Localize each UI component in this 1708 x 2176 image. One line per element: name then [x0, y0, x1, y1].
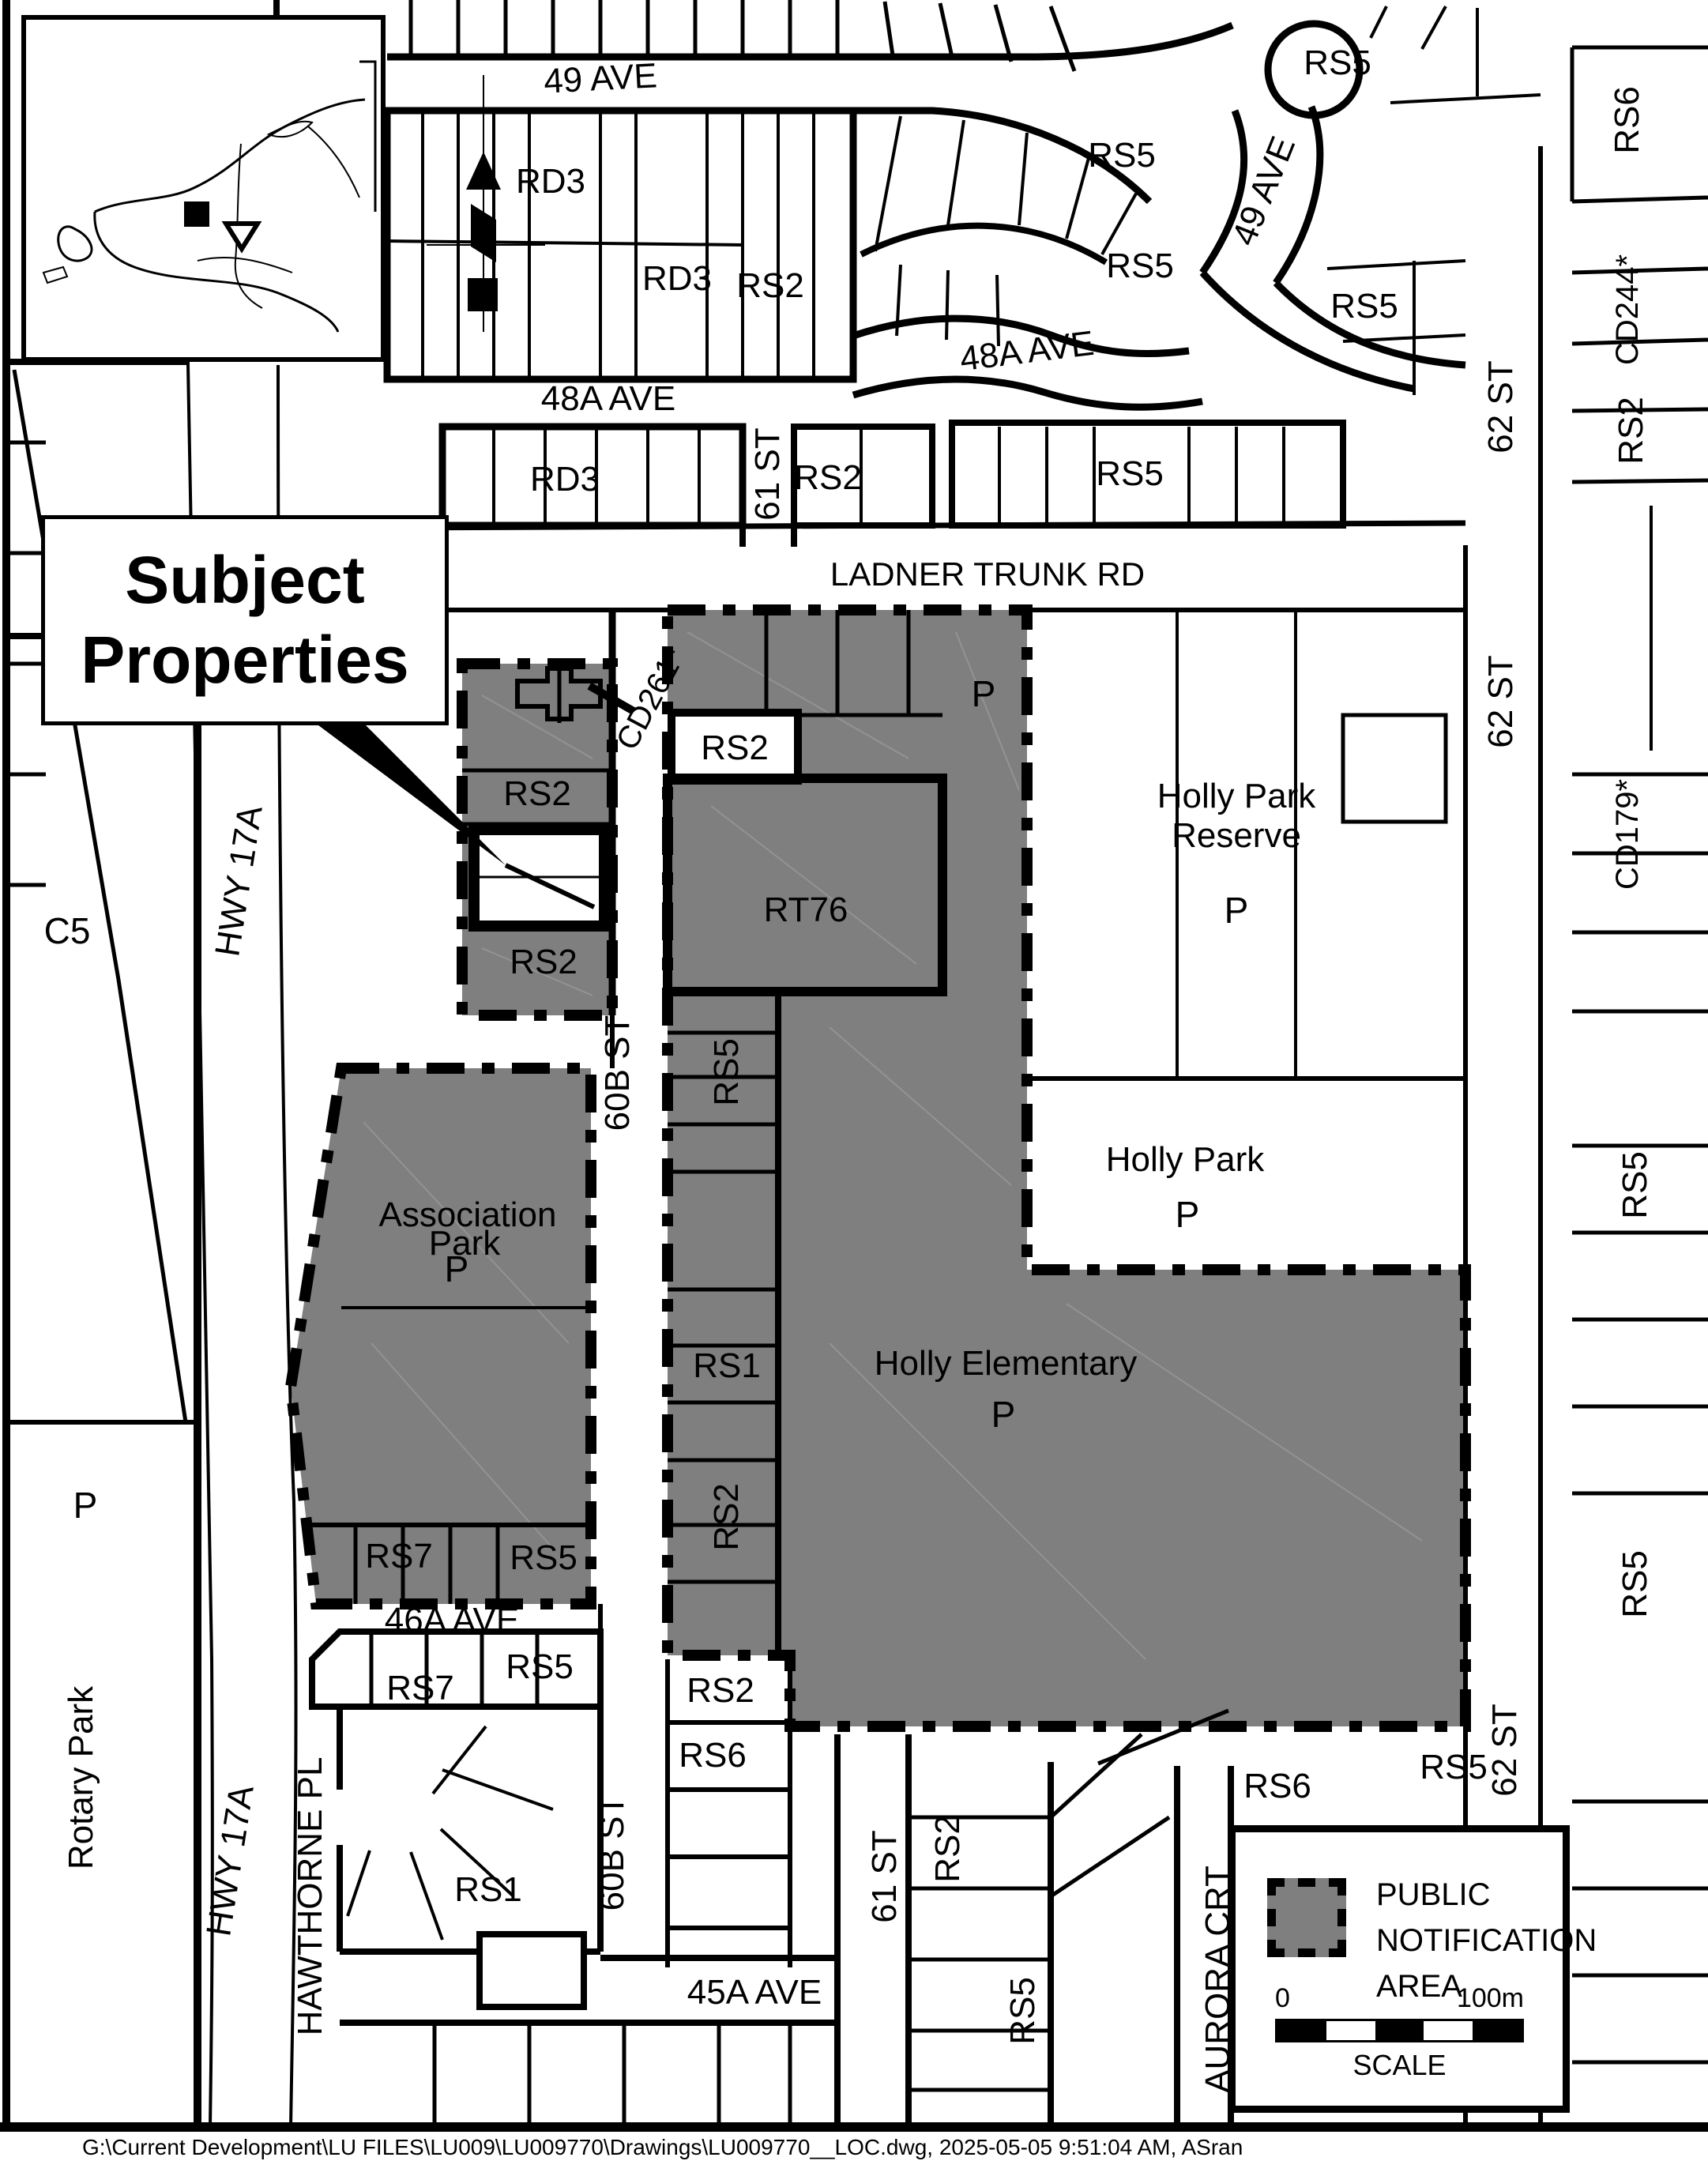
inset-map [24, 17, 383, 360]
zone-label-rs5: RS5 [709, 1038, 744, 1106]
zone-label-rd3: RD3 [516, 164, 585, 199]
zone-label-p: P [1176, 1196, 1200, 1233]
scale-bar-segments [1275, 2019, 1524, 2042]
zone-label-p: P [972, 676, 996, 712]
street-label-48a-ave: 48A AVE [541, 382, 675, 416]
zone-label-rs2: RS2 [1614, 397, 1649, 465]
scale-max-label: 100m [1457, 1983, 1524, 2014]
park-label-holly-elementary: Holly Elementary [875, 1346, 1138, 1381]
zone-label-rs1: RS1 [693, 1349, 761, 1384]
street-label-ladner-trunk-rd: LADNER TRUNK RD [830, 558, 1145, 591]
scale-caption: SCALE [1275, 2049, 1524, 2082]
zone-label-rs5: RS5 [510, 1541, 577, 1576]
callout-line-2: Properties [81, 620, 409, 700]
zone-label-cd244: CD244* [1612, 254, 1643, 365]
street-label-45a-ave: 45A AVE [687, 1975, 822, 2010]
park-label-holly-park: Holly Park [1106, 1143, 1265, 1177]
zone-label-rs5: RS5 [1420, 1750, 1488, 1785]
zone-label-rs5: RS5 [1106, 249, 1174, 284]
right-side-lines [1465, 47, 1708, 2127]
zone-label-c5: C5 [44, 913, 91, 949]
zone-label-rs5: RS5 [1304, 46, 1371, 81]
zone-label-rs2: RS2 [503, 777, 571, 811]
zone-label-rs2: RS2 [736, 269, 804, 303]
zone-label-rd3: RD3 [530, 462, 600, 497]
zone-label-rs5: RS5 [1006, 1977, 1040, 2045]
zone-label-rs6: RS6 [679, 1738, 747, 1773]
callout-line-1: Subject [125, 540, 364, 620]
street-label-60b-st: 60B ST [600, 1015, 635, 1131]
zoning-map: 49 AVE 49 AVE 48A AVE 48A AVE LADNER TRU… [0, 0, 1708, 2176]
zone-label-rs5: RS5 [1330, 289, 1398, 324]
zone-label-rs5: RS5 [1618, 1151, 1653, 1219]
zone-label-rs2: RS2 [709, 1483, 744, 1551]
park-label-holly-park-reserve: Holly Park [1157, 779, 1316, 814]
zone-label-rs2: RS2 [687, 1673, 754, 1708]
zone-label-rs5: RS5 [1618, 1550, 1653, 1618]
zone-label-rs2: RS2 [931, 1815, 965, 1883]
zone-label-rs5: RS5 [1088, 138, 1156, 173]
zone-label-rs1: RS1 [454, 1873, 522, 1907]
zone-label-cd179: CD179* [1612, 779, 1643, 890]
park-label-rotary-park: Rotary Park [64, 1686, 99, 1869]
inset-location-marker [184, 201, 209, 227]
zone-label-rs5: RS5 [1096, 457, 1164, 491]
legend-box: PUBLIC NOTIFICATION AREA 0 100m SCALE [1228, 1825, 1570, 2113]
zone-label-p: P [1225, 892, 1249, 928]
legend-title-line: PUBLIC [1376, 1872, 1597, 1918]
footer-file-path: G:\Current Development\LU FILES\LU009\LU… [82, 2135, 1243, 2160]
scale-min-label: 0 [1275, 1983, 1290, 2014]
scale-bar: 0 100m SCALE [1275, 1983, 1524, 2082]
legend-title-line: NOTIFICATION [1376, 1918, 1597, 1963]
zone-label-rd3: RD3 [642, 262, 712, 296]
zone-label-rs5: RS5 [506, 1650, 574, 1685]
zone-label-p: P [991, 1396, 1016, 1432]
street-label-46a-ave: 46A AVE [385, 1603, 519, 1638]
street-label-61-st: 61 ST [867, 1830, 902, 1922]
zone-label-rs7: RS7 [386, 1671, 454, 1706]
park-label-association-park: Park [429, 1226, 500, 1261]
zone-label-rs2: RS2 [794, 461, 862, 495]
street-label-hawthorne-pl: HAWTHORNE PL [293, 1757, 328, 2036]
street-label-62-st: 62 ST [1484, 655, 1518, 747]
zone-label-rs6: RS6 [1610, 86, 1645, 154]
reserve-building [1343, 715, 1446, 822]
rs2-white-box-bottom [480, 1934, 584, 2007]
notification-area-swatch [1267, 1878, 1346, 1957]
zone-label-rs2: RS2 [510, 945, 577, 980]
street-label-62-st: 62 ST [1488, 1704, 1522, 1796]
zone-label-rs2: RS2 [701, 731, 769, 766]
street-label-62-st: 62 ST [1484, 360, 1518, 453]
zone-label-rs6: RS6 [1243, 1769, 1311, 1804]
street-label-61-st: 61 ST [751, 427, 785, 520]
zone-label-rs7: RS7 [365, 1539, 433, 1574]
subject-properties-callout: Subject Properties [41, 515, 449, 725]
street-label-60b-st: 60B ST [595, 1795, 630, 1911]
park-label-holly-park-reserve: Reserve [1172, 819, 1301, 853]
zone-label-p: P [73, 1487, 98, 1523]
street-label-49-ave: 49 AVE [543, 58, 658, 99]
zone-label-rt76: RT76 [764, 893, 848, 928]
